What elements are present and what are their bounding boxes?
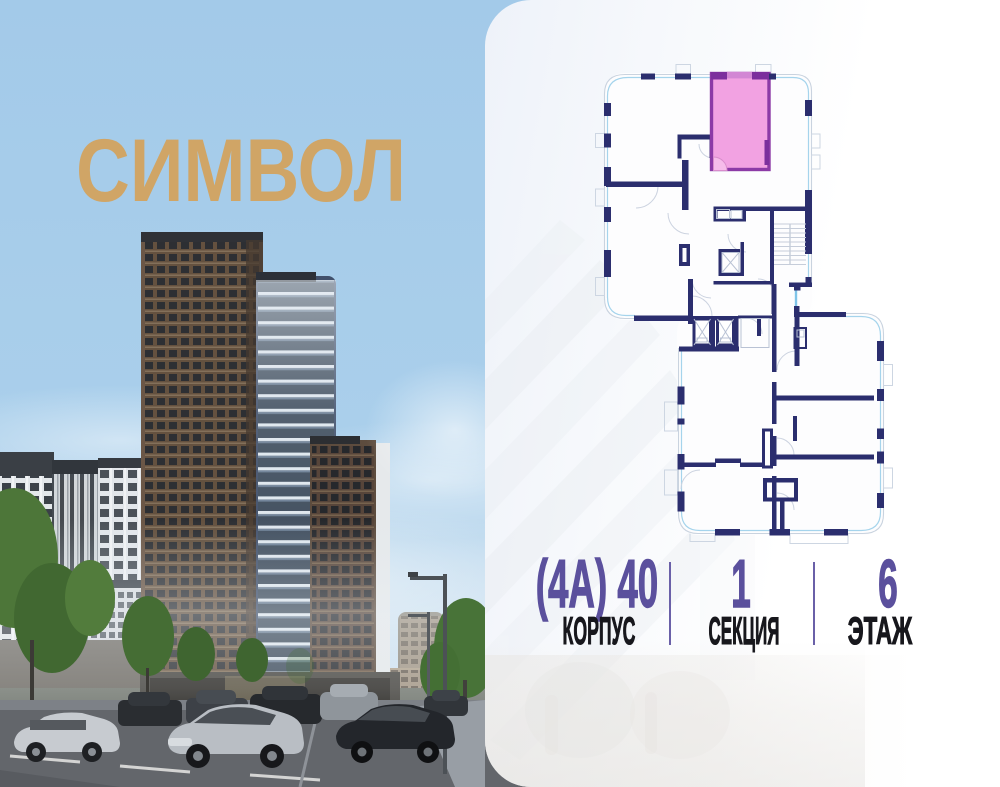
- svg-text:СИМВОЛ: СИМВОЛ: [76, 120, 406, 220]
